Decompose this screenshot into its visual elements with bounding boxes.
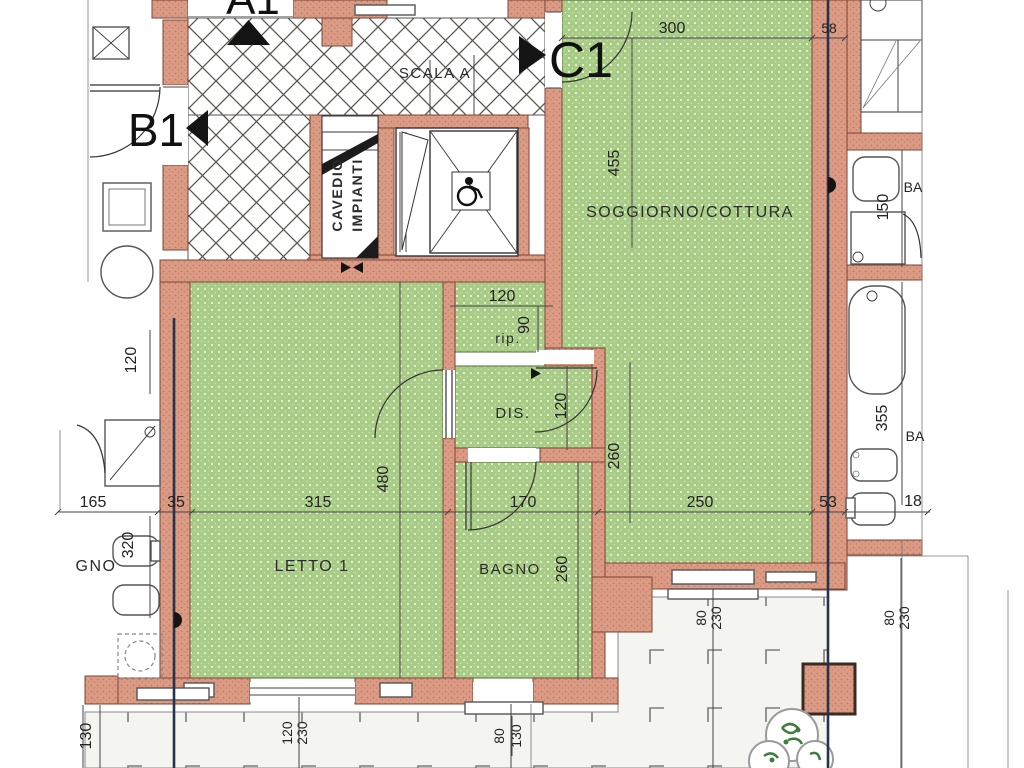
dim-120-dis: 120 <box>553 393 570 420</box>
window-opening <box>250 682 355 702</box>
label-bagno: BAGNO <box>479 561 541 578</box>
label-cavedio-1: CAVEDIO <box>329 158 345 231</box>
dim-53: 53 <box>819 494 837 511</box>
bathtub <box>849 286 905 394</box>
floor-plan: A1 B1 C1 SCALA A CAVEDIO IMPIANTI SOGGIO… <box>0 0 1024 768</box>
dim-455: 455 <box>606 150 623 177</box>
table <box>101 246 153 298</box>
bidet-left <box>113 585 159 615</box>
dim-90: 90 <box>516 316 533 334</box>
dim-320: 320 <box>120 532 137 559</box>
unit-label-a1: A1 <box>226 0 280 24</box>
floor-plan-canvas: A1 B1 C1 SCALA A CAVEDIO IMPIANTI SOGGIO… <box>0 0 1024 768</box>
dim-260-bagno: 260 <box>554 556 571 583</box>
right-top-room <box>861 0 922 112</box>
toilet-right-2 <box>851 493 895 525</box>
dim-80-b: 80 <box>491 728 507 744</box>
appliance <box>103 183 151 231</box>
window <box>380 683 412 697</box>
letto-area <box>190 282 443 678</box>
dim-80-ta: 80 <box>693 610 709 626</box>
dim-250: 250 <box>687 494 714 511</box>
label-dis: DIS. <box>495 405 530 422</box>
dim-150: 150 <box>875 194 892 221</box>
terrace-door <box>672 570 754 584</box>
dim-120-rip: 120 <box>489 288 516 305</box>
b1-unit-fixtures <box>77 0 162 678</box>
bath-door-arc <box>903 214 921 258</box>
dim-300: 300 <box>659 20 686 37</box>
label-soggiorno: SOGGIORNO/COTTURA <box>586 204 794 221</box>
unit-label-b1: B1 <box>128 104 184 156</box>
dim-230-b: 230 <box>294 721 310 745</box>
label-bagno-right-a: BA <box>904 179 923 195</box>
dim-355: 355 <box>874 405 891 432</box>
dim-230-tb: 230 <box>896 606 912 630</box>
label-bagno-right-b: BA <box>906 428 925 444</box>
label-cavedio-2: IMPIANTI <box>349 158 365 231</box>
dim-120-left: 120 <box>123 347 140 374</box>
dim-35: 35 <box>167 494 185 511</box>
dim-170: 170 <box>510 494 537 511</box>
wheelchair-icon <box>452 172 490 210</box>
dim-130-bl: 130 <box>78 723 95 750</box>
label-letto: LETTO 1 <box>274 558 349 575</box>
dim-130-b: 130 <box>508 724 524 748</box>
dim-315: 315 <box>305 494 332 511</box>
dim-230-ta: 230 <box>708 606 724 630</box>
dim-80-tb: 80 <box>881 610 897 626</box>
label-scala: SCALA A <box>399 65 471 82</box>
dim-120-b: 120 <box>279 721 295 745</box>
window <box>766 572 816 582</box>
window-opening <box>473 682 533 702</box>
dim-480: 480 <box>375 466 392 493</box>
dim-18: 18 <box>904 493 922 510</box>
shower-door-arc <box>77 425 105 473</box>
label-bagno-left-clipped: GNO <box>76 558 117 575</box>
dim-165: 165 <box>80 494 107 511</box>
dim-58: 58 <box>821 20 837 36</box>
unit-label-c1: C1 <box>549 32 613 88</box>
window <box>355 5 415 15</box>
dim-260-dis: 260 <box>606 443 623 470</box>
